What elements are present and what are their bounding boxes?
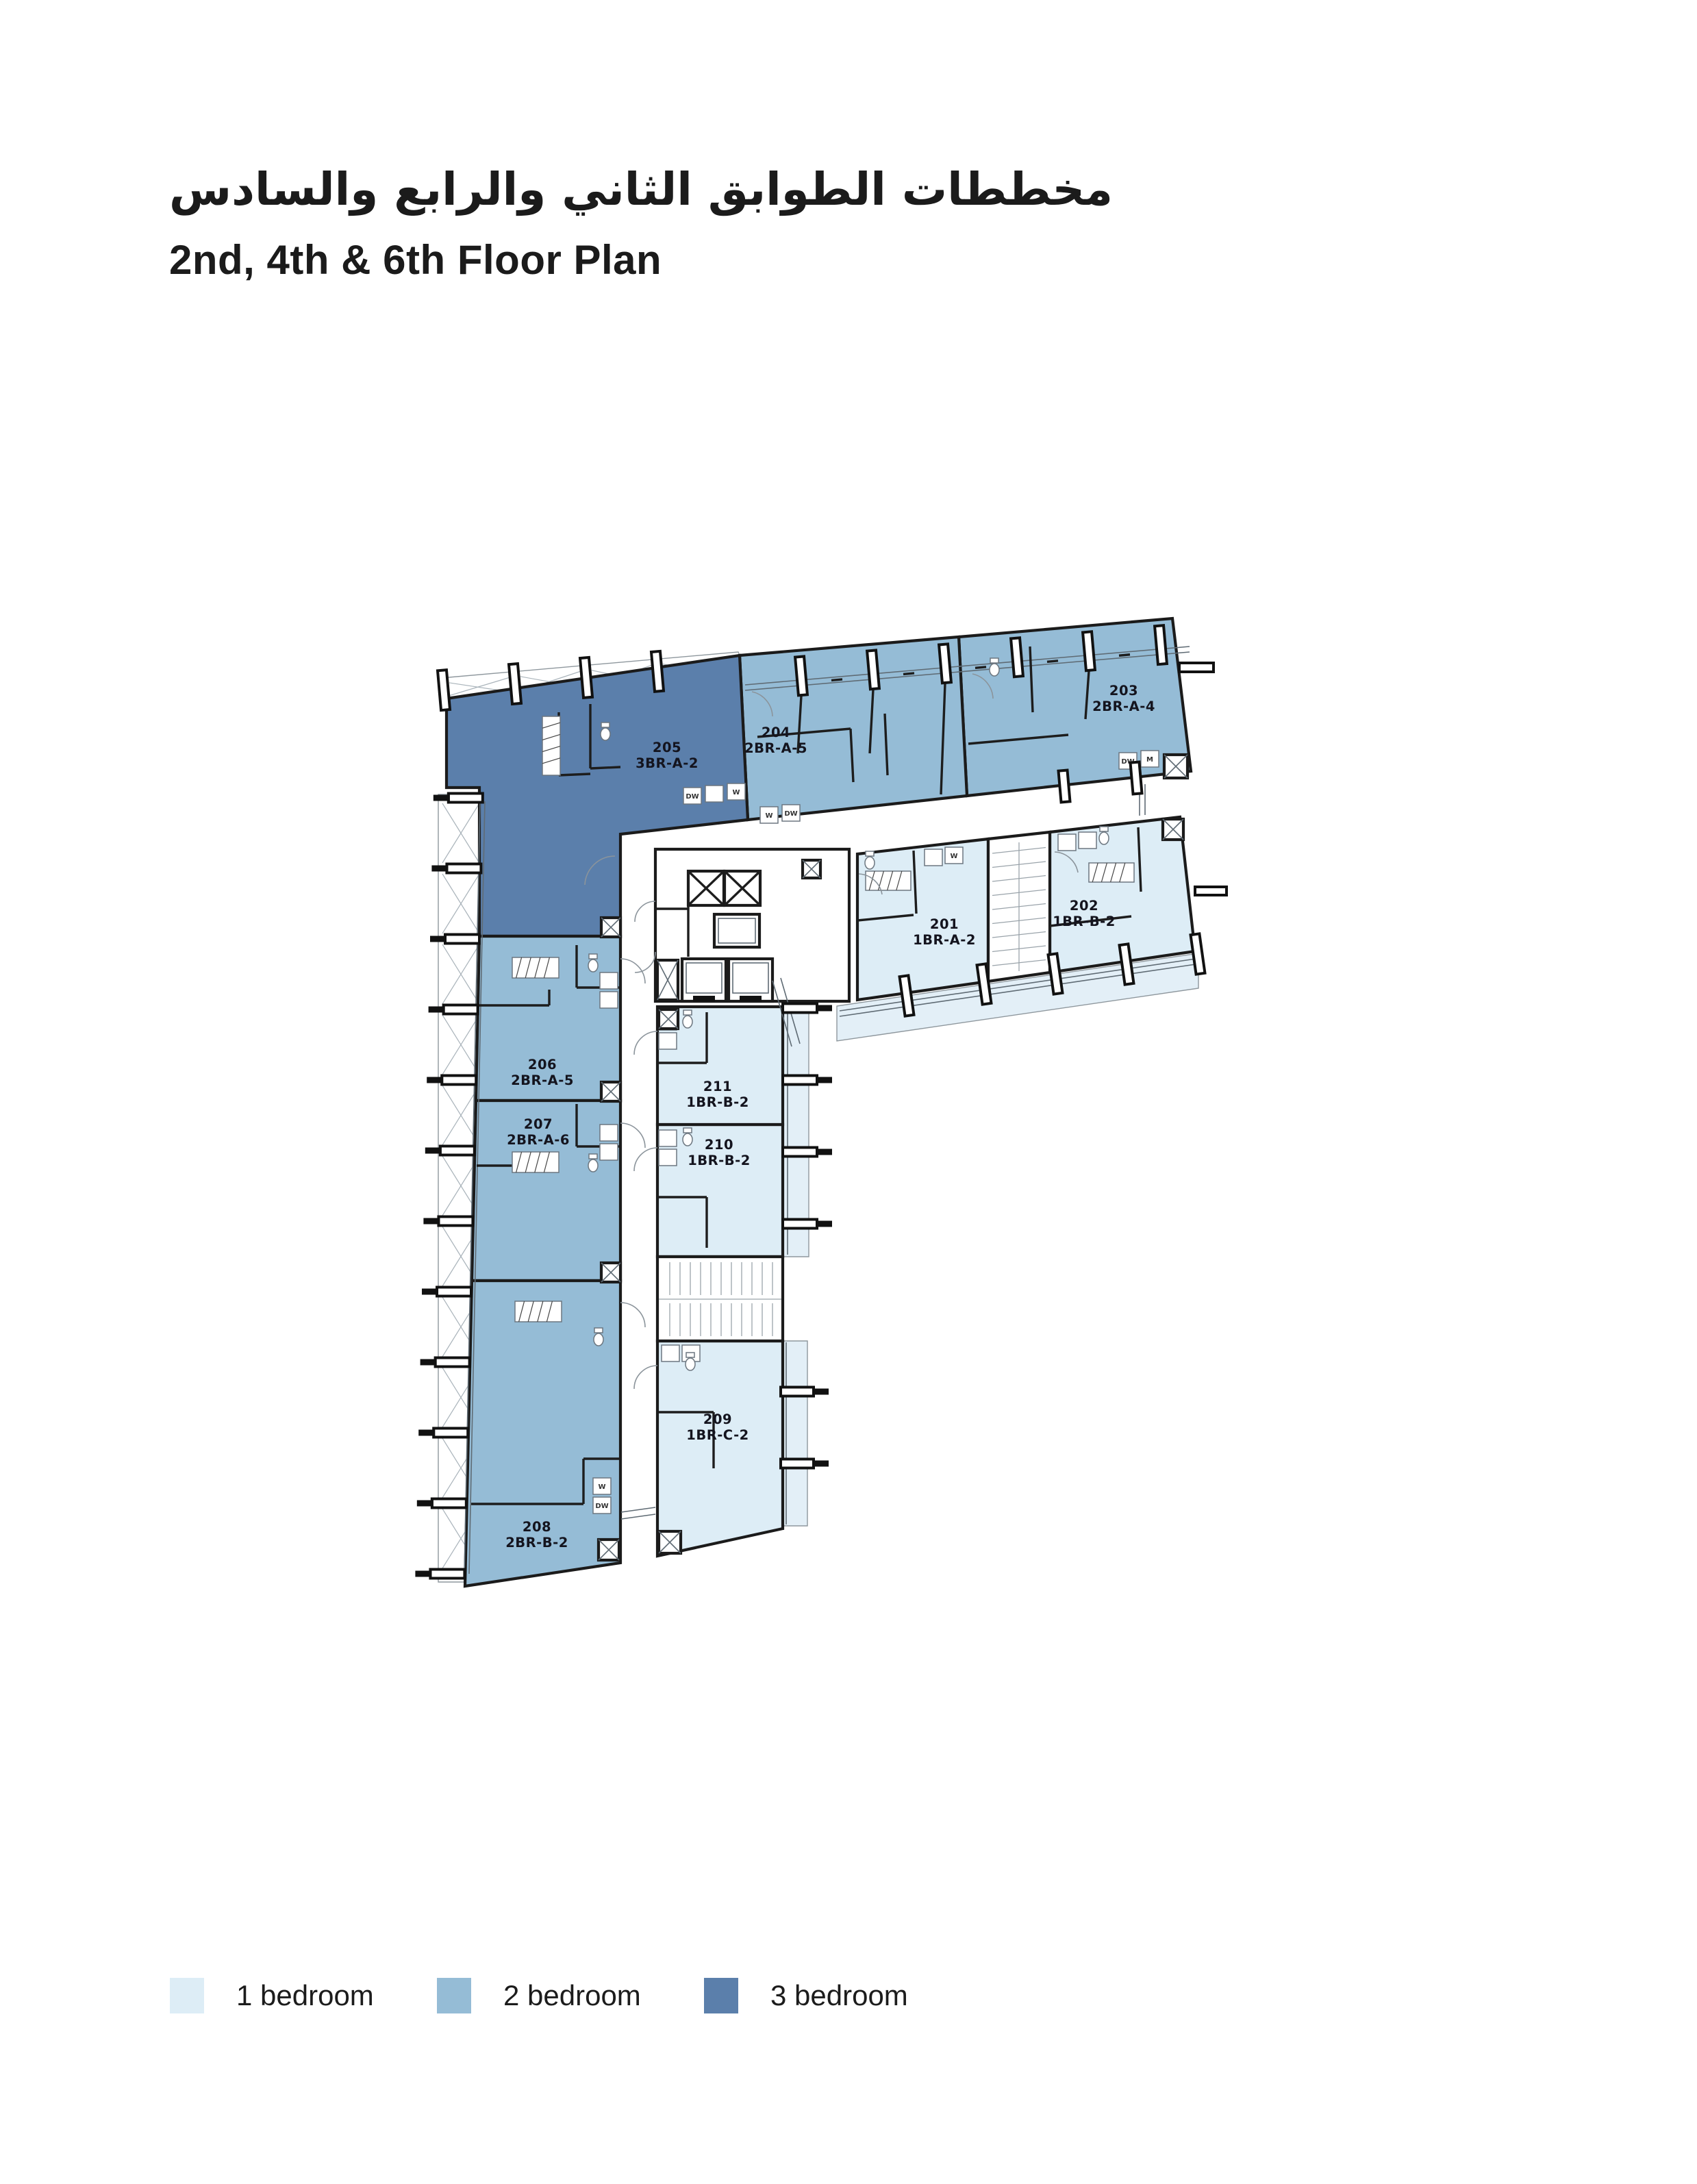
svg-text:203: 203 <box>1109 683 1138 699</box>
window-tick <box>509 664 521 704</box>
legend: 1 bedroom 2 bedroom 3 bedroom <box>0 1972 1697 2020</box>
svg-text:2BR-A-4: 2BR-A-4 <box>1092 699 1155 714</box>
svg-text:W: W <box>765 812 772 820</box>
svg-text:208: 208 <box>523 1519 551 1535</box>
svg-text:204: 204 <box>762 725 790 740</box>
svg-text:207: 207 <box>524 1116 553 1132</box>
svg-text:2BR-A-6: 2BR-A-6 <box>507 1132 570 1148</box>
unit-region-209 <box>657 1341 783 1556</box>
window-tick <box>1131 762 1142 794</box>
svg-text:1BR-B-2: 1BR-B-2 <box>686 1094 749 1110</box>
svg-text:201: 201 <box>930 916 959 932</box>
legend-label-2-bedroom: 2 bedroom <box>503 1979 641 2012</box>
svg-text:209: 209 <box>703 1411 732 1427</box>
svg-text:3BR-A-2: 3BR-A-2 <box>636 755 699 771</box>
svg-text:205: 205 <box>653 740 681 755</box>
svg-text:W: W <box>950 853 957 860</box>
svg-text:DW: DW <box>686 793 699 801</box>
svg-text:211: 211 <box>703 1079 732 1094</box>
window-tick <box>1011 638 1023 677</box>
svg-text:M: M <box>1146 756 1153 764</box>
window-tick <box>580 657 592 698</box>
window-tick <box>1059 770 1070 803</box>
svg-text:1BR-A-2: 1BR-A-2 <box>913 932 976 948</box>
legend-label-3-bedroom: 3 bedroom <box>770 1979 908 2012</box>
window-tick <box>795 656 807 695</box>
legend-swatch-2-bedroom <box>437 1978 471 2013</box>
svg-text:206: 206 <box>528 1057 557 1072</box>
window-tick <box>438 670 450 710</box>
legend-swatch-3-bedroom <box>704 1978 738 2013</box>
window-tick <box>867 650 879 689</box>
window-tick <box>651 651 664 692</box>
svg-text:W: W <box>598 1483 605 1491</box>
svg-text:W: W <box>732 789 740 796</box>
svg-text:DW: DW <box>595 1503 608 1510</box>
svg-text:2BR-A-5: 2BR-A-5 <box>511 1072 574 1088</box>
floor-plan-drawing: DWWWDWDWMWWDW 2011BR-A-2 2021BR-B-2 2032… <box>0 0 1697 2184</box>
svg-text:DW: DW <box>784 810 797 818</box>
svg-text:1BR-C-2: 1BR-C-2 <box>686 1427 749 1443</box>
svg-text:1BR-B-2: 1BR-B-2 <box>688 1153 751 1168</box>
svg-text:202: 202 <box>1070 898 1098 914</box>
legend-swatch-1-bedroom <box>170 1978 204 2013</box>
svg-text:210: 210 <box>705 1137 733 1153</box>
svg-text:2BR-B-2: 2BR-B-2 <box>505 1535 568 1551</box>
svg-text:2BR-A-5: 2BR-A-5 <box>744 740 807 756</box>
window-tick <box>939 644 951 683</box>
window-tick <box>1155 625 1167 664</box>
svg-text:1BR-B-2: 1BR-B-2 <box>1053 914 1116 929</box>
window-tick <box>1083 631 1095 670</box>
legend-label-1-bedroom: 1 bedroom <box>236 1979 374 2012</box>
floor-plan-sheet: مخططات الطوابق الثاني والرابع والسادس 2n… <box>0 0 1697 2184</box>
